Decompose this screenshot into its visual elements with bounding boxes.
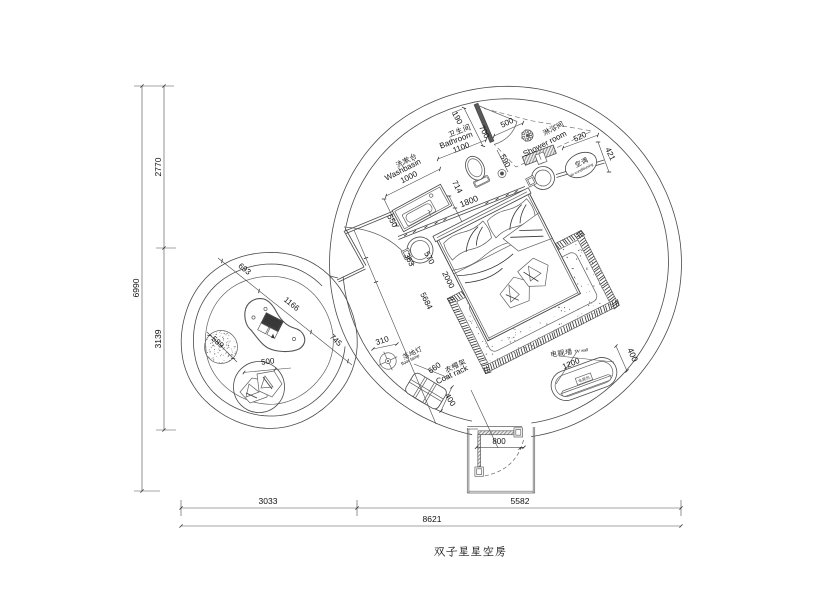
svg-text:2770: 2770: [153, 157, 163, 176]
svg-text:6990: 6990: [131, 278, 141, 297]
svg-text:500: 500: [261, 356, 276, 366]
svg-text:8621: 8621: [423, 514, 442, 524]
svg-text:800: 800: [492, 437, 506, 446]
svg-text:3033: 3033: [259, 496, 278, 506]
svg-text:5582: 5582: [511, 496, 530, 506]
svg-text:3139: 3139: [153, 329, 163, 348]
